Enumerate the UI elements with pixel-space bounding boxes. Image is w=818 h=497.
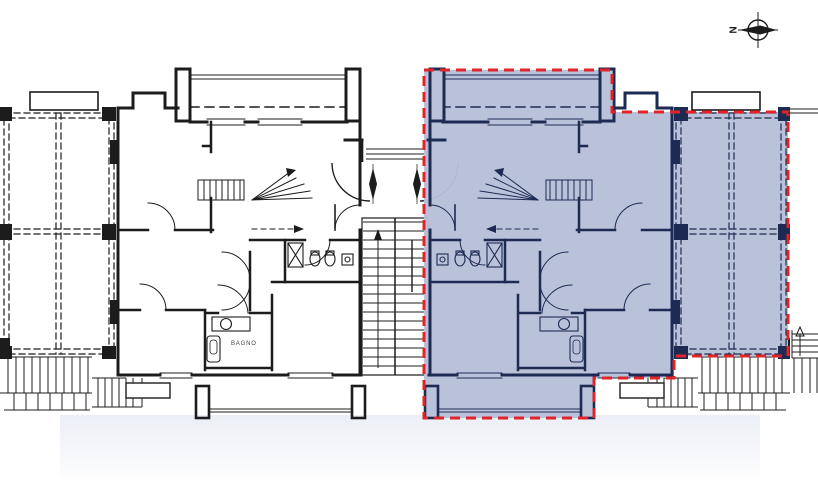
left-unit-surroundings [0, 92, 170, 410]
right-stair-extension [788, 109, 818, 393]
north-label: N [726, 26, 737, 33]
drop-shadow [60, 415, 760, 485]
floor-plan-drawing: BAGNO N [0, 0, 818, 497]
left-unit-plan [0, 69, 365, 418]
room-label-bagno: BAGNO [231, 341, 257, 347]
north-compass-icon: N [726, 12, 778, 48]
floor-plan-canvas: BAGNO N [0, 0, 818, 497]
